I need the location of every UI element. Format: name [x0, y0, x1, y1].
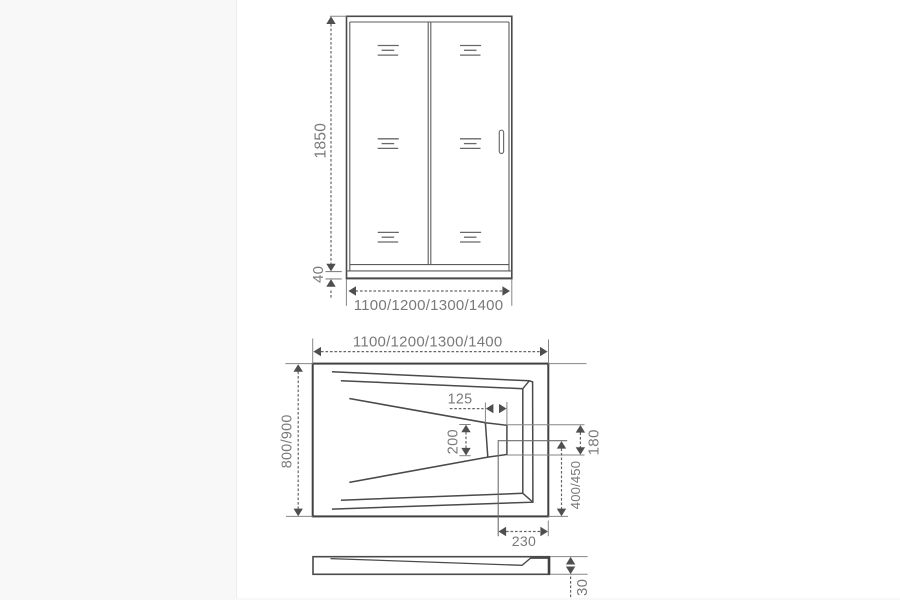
- svg-text:1100/1200/1300/1400: 1100/1200/1300/1400: [353, 333, 503, 350]
- svg-text:125: 125: [448, 392, 473, 408]
- svg-text:230: 230: [512, 533, 536, 549]
- svg-text:400/450: 400/450: [568, 461, 583, 509]
- svg-text:800/900: 800/900: [280, 414, 296, 468]
- svg-text:1100/1200/1300/1400: 1100/1200/1300/1400: [354, 297, 504, 314]
- svg-text:180: 180: [585, 429, 602, 455]
- svg-text:200: 200: [446, 429, 462, 454]
- svg-text:40: 40: [310, 266, 327, 283]
- svg-text:30: 30: [574, 579, 591, 596]
- svg-text:1850: 1850: [312, 123, 329, 159]
